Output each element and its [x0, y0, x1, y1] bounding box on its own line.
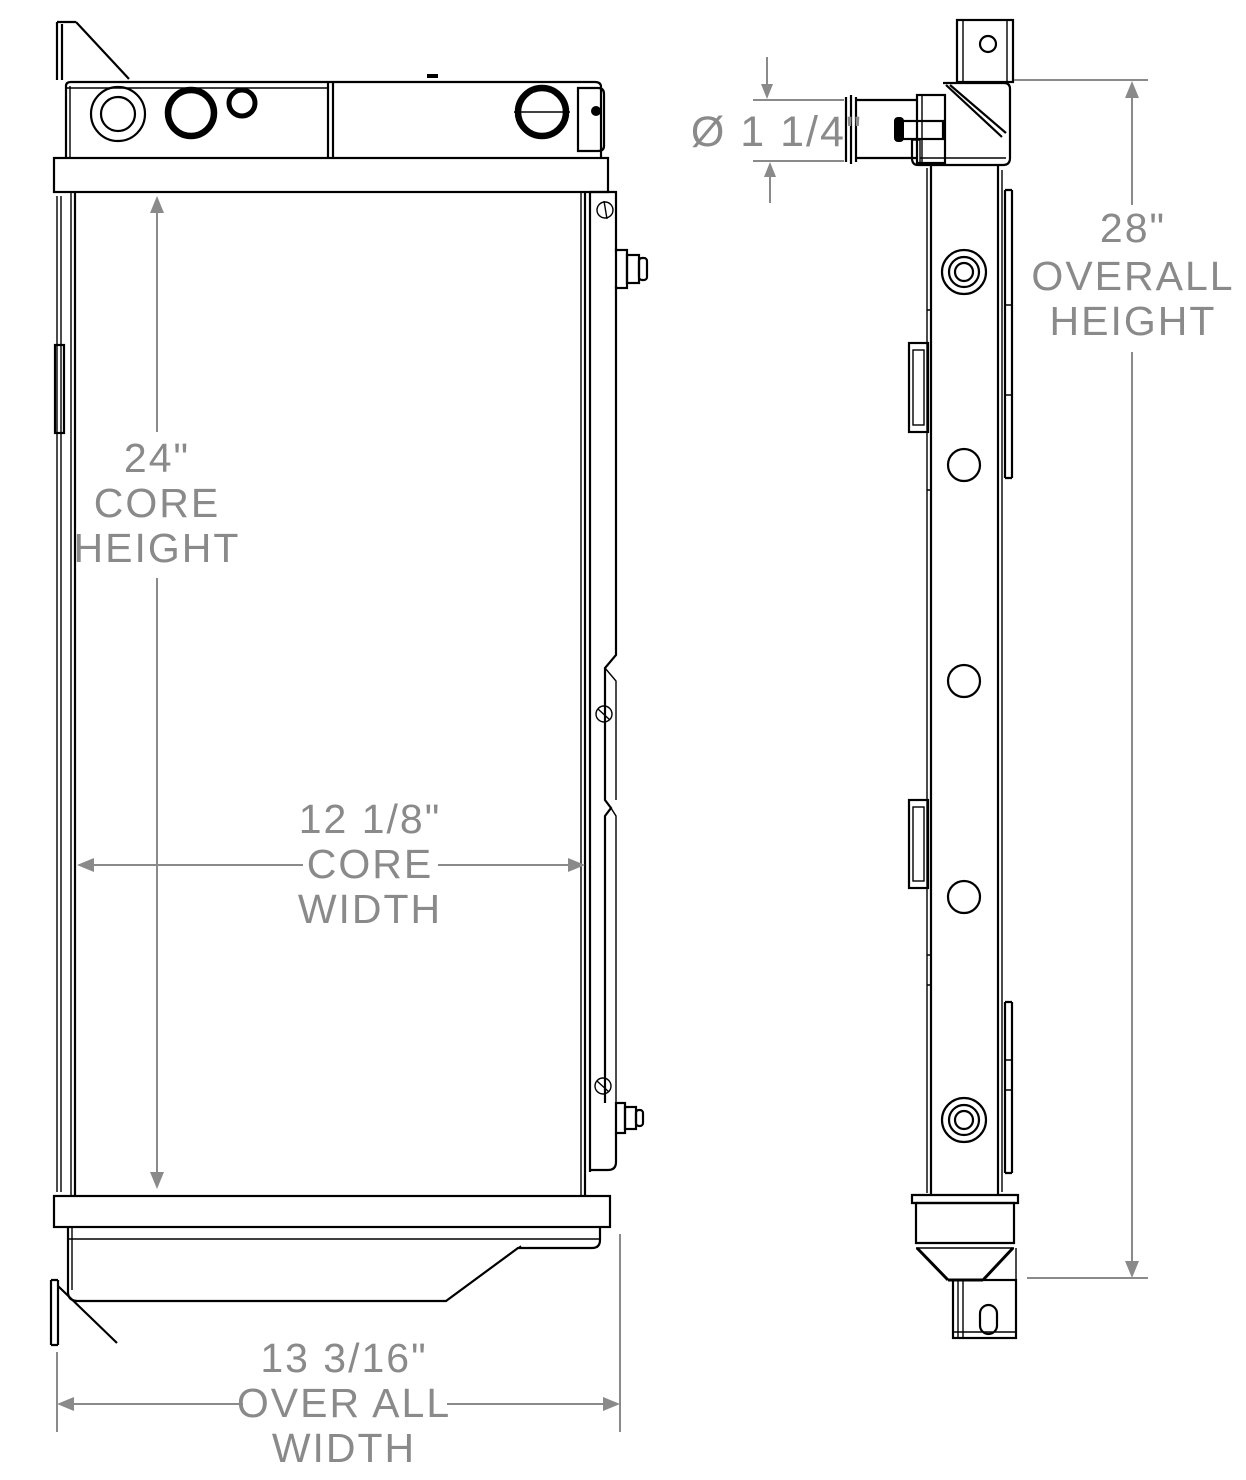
stud-cap	[894, 117, 904, 142]
core-width-dimension: 12 1/8" CORE WIDTH	[77, 796, 585, 932]
radiator-technical-drawing: 24" CORE HEIGHT 12 1/8" CORE WIDTH 13 3/…	[0, 0, 1246, 1480]
hole	[948, 881, 980, 913]
pin-dot	[591, 106, 601, 116]
side-left-tab	[909, 343, 928, 432]
overall-width-dimension: 13 3/16" OVER ALL WIDTH	[57, 1234, 620, 1471]
filler-neck-outer	[91, 87, 145, 141]
core	[55, 192, 585, 1196]
right-side-flange	[590, 192, 647, 1172]
core-width-value: 12 1/8"	[299, 796, 442, 842]
top-tank	[66, 76, 604, 158]
pipe-diameter-dimension: Ø 1 1/4"	[691, 57, 863, 203]
side-bottom-bracket	[953, 1280, 1016, 1338]
top-header-plate	[54, 158, 608, 192]
core-width-label-2: WIDTH	[298, 886, 442, 932]
pipe-diameter-value: Ø 1 1/4"	[691, 108, 863, 156]
overall-height-dimension: 28" OVERALL HEIGHT	[1014, 80, 1235, 1278]
core-height-dimension: 24" CORE HEIGHT	[74, 196, 241, 1189]
mounting-bolt	[942, 1098, 986, 1142]
arrow-right-icon	[603, 1397, 620, 1411]
arrow-right-icon	[568, 858, 585, 872]
bottom-left-bracket	[51, 1280, 117, 1345]
side-top-bracket	[957, 20, 1013, 82]
arrow-down-icon	[761, 84, 773, 99]
bracket-slot	[980, 1305, 997, 1334]
arrow-down-icon	[150, 1172, 164, 1189]
small-port-ring	[229, 90, 255, 116]
core-height-label-1: CORE	[94, 480, 220, 526]
hole	[948, 449, 980, 481]
side-bottom-tank	[912, 1195, 1018, 1338]
core-height-label-2: HEIGHT	[74, 525, 241, 571]
bracket-hole	[980, 36, 996, 52]
upper-stud	[616, 250, 647, 288]
mounting-bolt	[942, 250, 986, 294]
side-view	[846, 20, 1018, 1338]
lower-stud	[616, 1103, 643, 1133]
overall-width-value: 13 3/16"	[260, 1335, 427, 1381]
bottom-tank	[68, 1227, 600, 1301]
arrow-up-icon	[764, 162, 776, 177]
core-width-label-1: CORE	[307, 841, 433, 887]
overall-height-label-2: HEIGHT	[1050, 298, 1217, 344]
side-left-tab	[909, 800, 928, 888]
overall-height-value: 28"	[1100, 205, 1166, 251]
inlet-ring	[168, 90, 214, 136]
drawing-svg: 24" CORE HEIGHT 12 1/8" CORE WIDTH 13 3/…	[0, 0, 1246, 1480]
front-view	[51, 22, 647, 1345]
bottom-header-plate	[54, 1196, 610, 1227]
filler-neck-inner	[101, 97, 135, 131]
core-height-value: 24"	[124, 435, 190, 481]
hole	[948, 665, 980, 697]
arrow-up-icon	[1125, 81, 1139, 98]
arrow-down-icon	[1125, 1261, 1139, 1278]
overall-width-label-2: WIDTH	[272, 1425, 416, 1471]
overall-width-label-1: OVER ALL	[237, 1380, 451, 1426]
side-core-column	[909, 165, 1012, 1195]
overall-height-label-1: OVERALL	[1031, 253, 1234, 299]
arrow-left-icon	[57, 1397, 74, 1411]
arrow-left-icon	[77, 858, 94, 872]
top-left-bracket	[57, 22, 129, 80]
arrow-up-icon	[150, 196, 164, 213]
